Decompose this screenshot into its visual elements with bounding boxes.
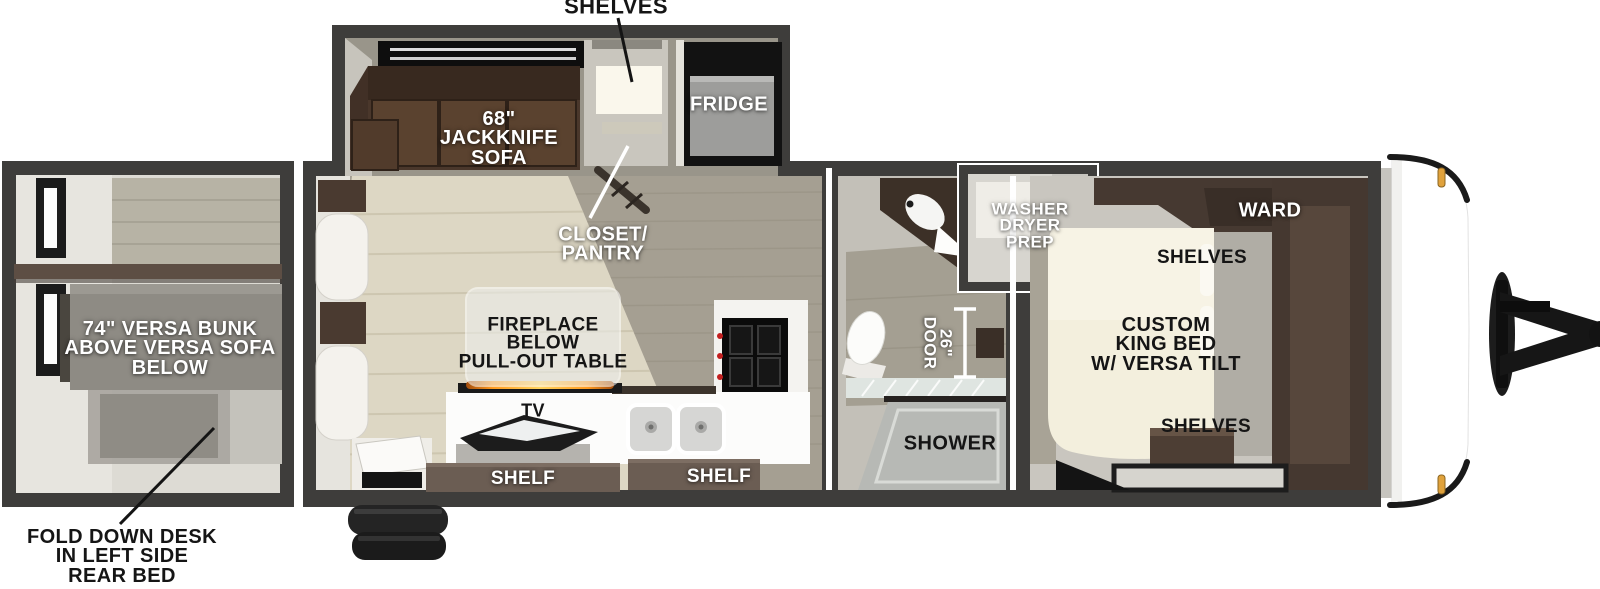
shelves-bed-foot-label: SHELVES [1161, 418, 1251, 436]
bed-step [1114, 466, 1286, 490]
stove [717, 318, 788, 392]
jackknife-sofa-label: 68"JACKKNIFESOFA [440, 110, 558, 168]
corner-cabinet [318, 180, 366, 212]
slideout-window [378, 41, 586, 68]
medicine-cabinet [976, 328, 1004, 358]
hitch [1489, 272, 1600, 396]
seat-top [316, 214, 368, 300]
washer-dryer-prep-label: WASHERDRYERPREP [991, 201, 1068, 250]
entry-door [352, 436, 432, 490]
fireplace-label: FIREPLACEBELOWPULL-OUT TABLE [459, 316, 628, 371]
marker-light-bottom [1438, 475, 1445, 494]
custom-king-bed-label: CUSTOMKING BEDW/ VERSA TILT [1091, 316, 1241, 374]
versa-bunk-label: 74" VERSA BUNKABOVE VERSA SOFABELOW [64, 320, 275, 378]
door-26-label: 26"DOOR [921, 317, 954, 370]
tv-label: TV [521, 402, 545, 419]
shower-label: SHOWER [904, 434, 996, 453]
shelves-top-label: SHELVES [564, 0, 668, 17]
rear-window-top [36, 178, 66, 258]
entry-steps [348, 505, 448, 560]
floorplan-scene: SHELVES 68"JACKKNIFESOFA FRIDGE CLOSET/P… [0, 0, 1600, 589]
front-cap [1381, 156, 1469, 506]
shelves-bed-head-label: SHELVES [1157, 249, 1247, 267]
rear-shelf-rail [14, 264, 282, 279]
floorplan-drawing [0, 0, 1600, 589]
fridge-label: FRIDGE [690, 95, 768, 114]
shelf-right-label: SHELF [687, 468, 751, 486]
marker-light-top [1438, 168, 1445, 187]
side-table [320, 302, 366, 344]
shelf-left-label: SHELF [491, 470, 555, 488]
closet-pantry-label: CLOSET/PANTRY [558, 226, 647, 265]
fold-down-desk-label: FOLD DOWN DESKIN LEFT SIDEREAR BED [27, 528, 217, 586]
ward-label: WARD [1239, 201, 1302, 220]
seat-bottom [316, 346, 368, 440]
